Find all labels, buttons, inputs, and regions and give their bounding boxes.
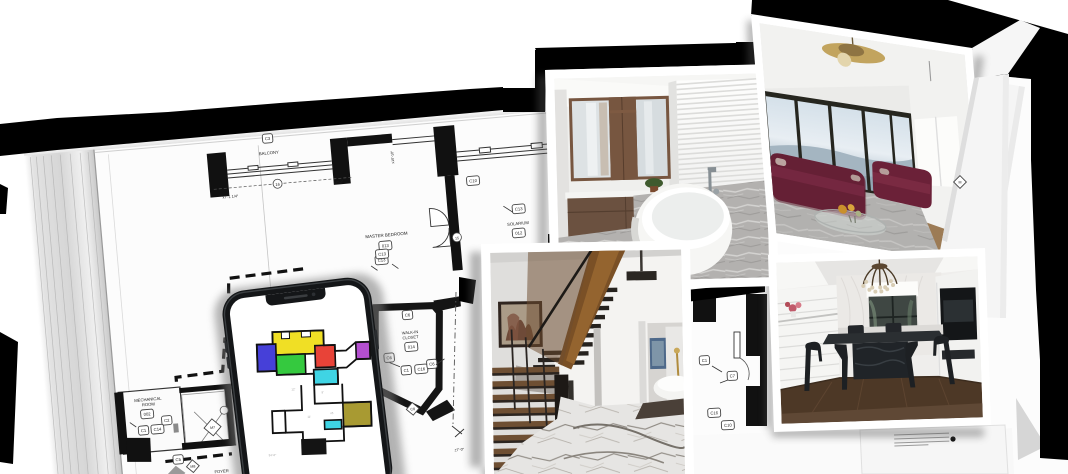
svg-text:M: M — [959, 181, 962, 185]
svg-text:34'-6": 34'-6" — [269, 453, 277, 457]
svg-text:11': 11' — [307, 415, 311, 419]
svg-text:x5: x5 — [330, 411, 334, 415]
svg-text:12': 12' — [291, 387, 295, 391]
